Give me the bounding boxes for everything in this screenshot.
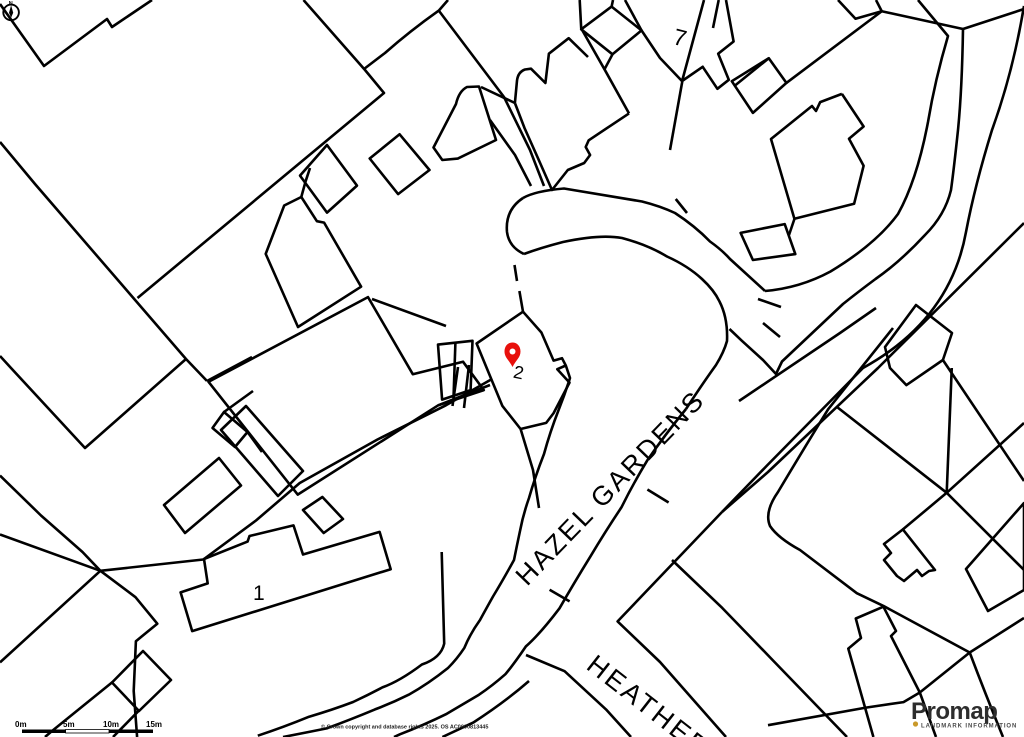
svg-text:© Crown copyright and database: © Crown copyright and database rights 20… — [321, 724, 488, 731]
svg-text:Promap: Promap — [911, 698, 997, 725]
svg-text:1: 1 — [253, 582, 265, 605]
svg-text:N: N — [9, 1, 13, 7]
svg-text:15m: 15m — [146, 720, 162, 729]
svg-text:10m: 10m — [103, 720, 119, 729]
svg-text:LANDMARK INFORMATION: LANDMARK INFORMATION — [921, 724, 1017, 730]
svg-text:0m: 0m — [15, 720, 27, 729]
svg-text:5m: 5m — [63, 720, 75, 729]
